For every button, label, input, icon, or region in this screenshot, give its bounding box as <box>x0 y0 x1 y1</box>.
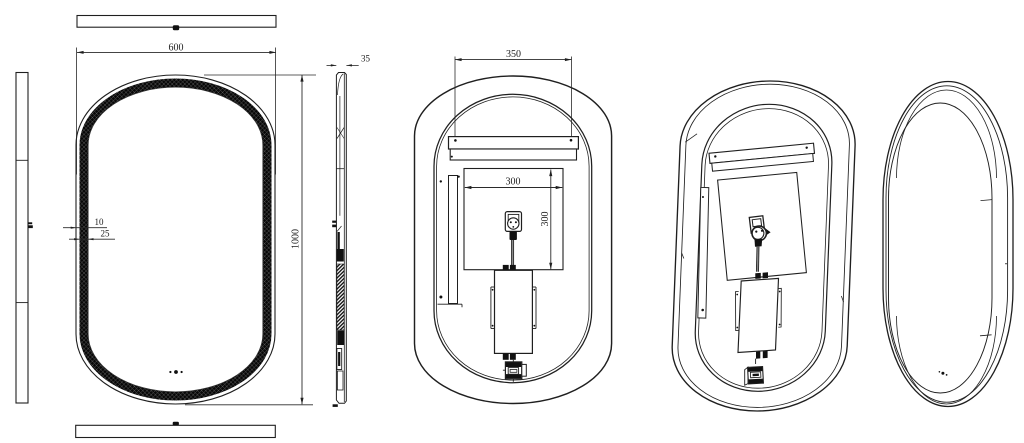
svg-text:600: 600 <box>169 42 184 53</box>
svg-text:35: 35 <box>361 54 371 64</box>
svg-text:300: 300 <box>540 212 551 227</box>
svg-text:10: 10 <box>95 217 105 227</box>
svg-text:350: 350 <box>506 49 521 60</box>
svg-text:300: 300 <box>506 177 521 188</box>
svg-text:1000: 1000 <box>291 229 302 249</box>
svg-text:25: 25 <box>101 229 111 239</box>
